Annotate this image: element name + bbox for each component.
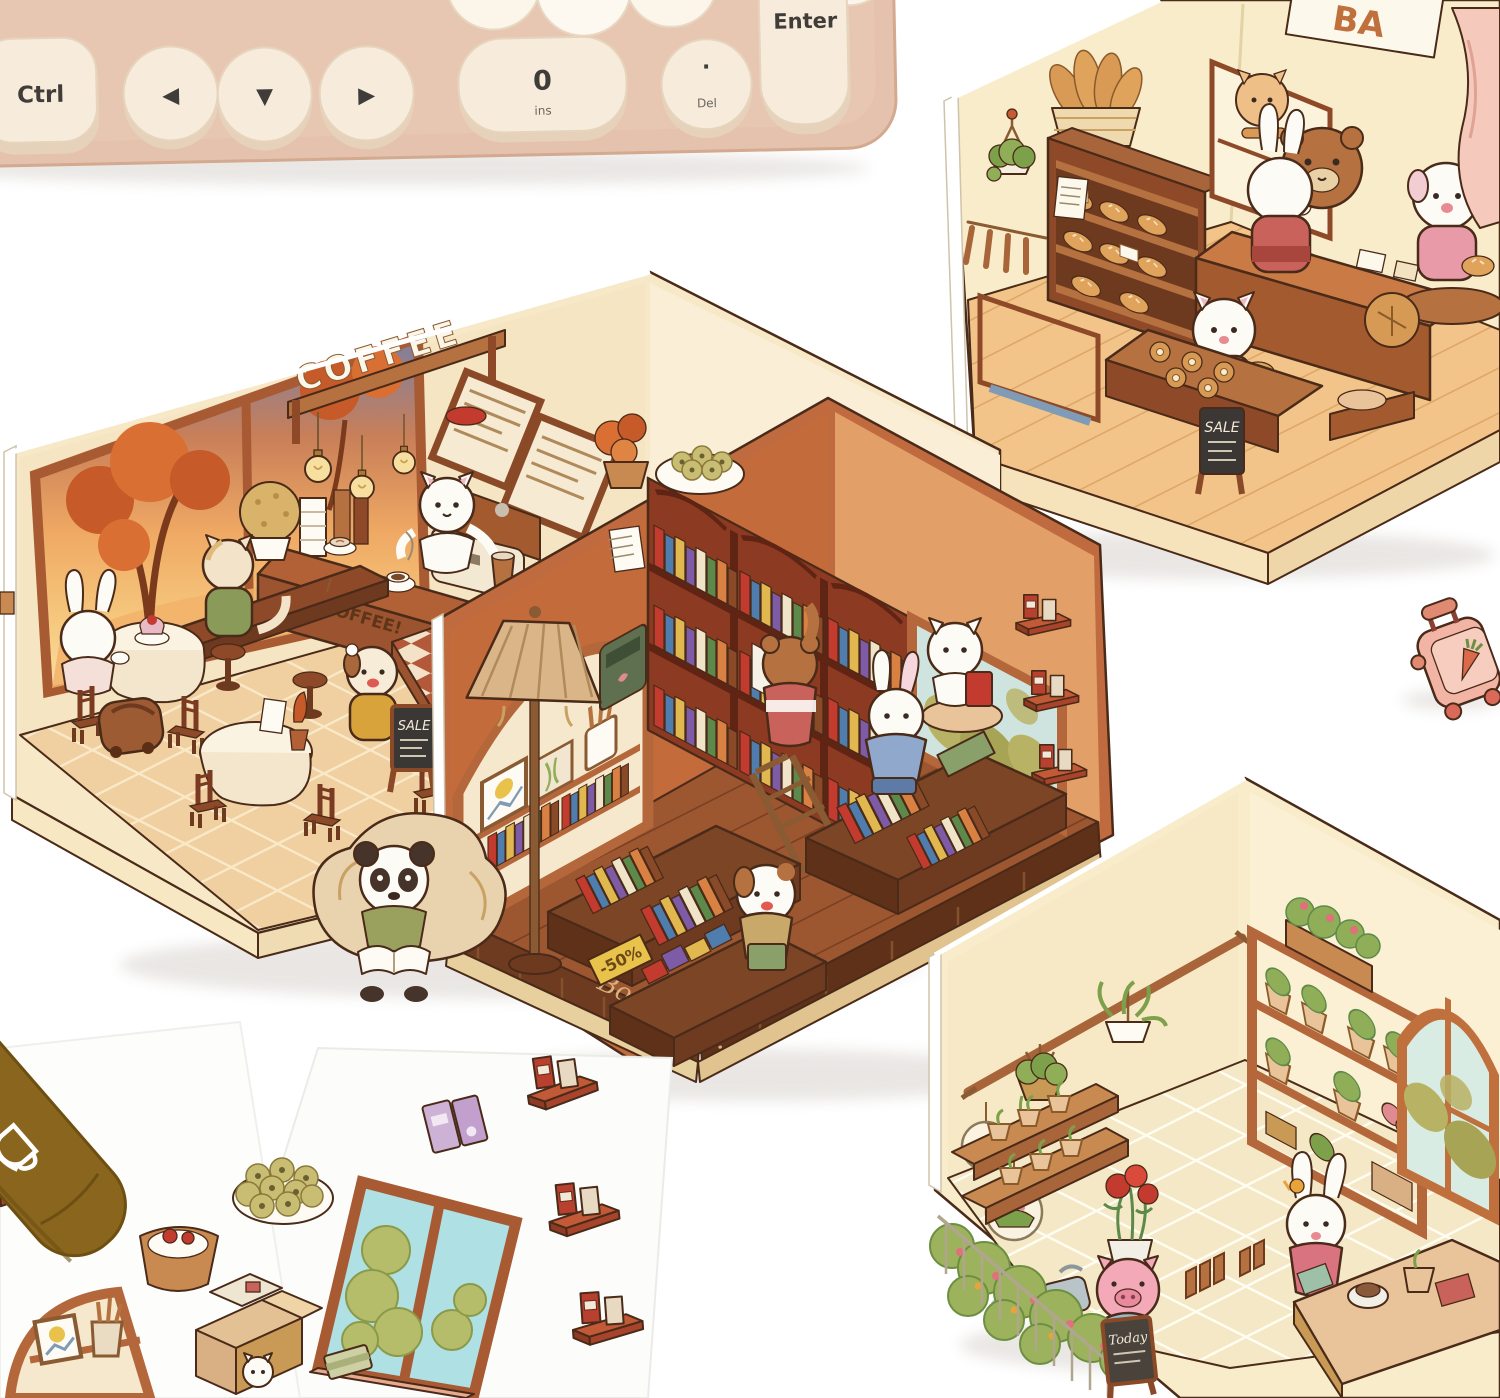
svg-text:▶: ▶ xyxy=(358,83,376,108)
plant-chalkboard: Today xyxy=(1102,1316,1158,1398)
svg-text:SALE: SALE xyxy=(398,719,431,734)
peeking-cat xyxy=(243,1353,273,1387)
key-zero: 0 ins xyxy=(458,36,628,143)
scene-canvas: Ctrl ◀ ▼ ▶ 0 ins · Del Enter xyxy=(0,0,1500,1398)
keyboard: Ctrl ◀ ▼ ▶ 0 ins · Del Enter xyxy=(0,0,897,168)
svg-text:Enter: Enter xyxy=(773,8,838,33)
acrylic-edge xyxy=(929,951,941,1192)
svg-text:BA: BA xyxy=(1330,0,1389,46)
svg-text:SALE: SALE xyxy=(1204,420,1239,436)
svg-text:▼: ▼ xyxy=(256,84,274,109)
svg-text:0: 0 xyxy=(533,65,552,96)
cake-sticker xyxy=(140,1227,218,1291)
svg-text:Del: Del xyxy=(697,96,717,110)
sun-picture-frame xyxy=(35,1315,82,1363)
product-photo-scene: Ctrl ◀ ▼ ▶ 0 ins · Del Enter xyxy=(0,0,1500,1398)
red-book xyxy=(966,672,992,706)
key-ctrl: Ctrl xyxy=(0,37,100,155)
svg-text:◀: ◀ xyxy=(162,83,180,108)
svg-text:·: · xyxy=(702,55,711,80)
svg-text:ins: ins xyxy=(534,103,551,117)
paper-note xyxy=(609,526,645,572)
key-arrow-left: ◀ xyxy=(123,45,219,150)
key-del: · Del xyxy=(661,38,753,139)
acrylic-edge xyxy=(4,446,16,800)
key-arrow-down: ▼ xyxy=(217,46,313,151)
key-arrow-right: ▶ xyxy=(319,45,415,150)
svg-text:Ctrl: Ctrl xyxy=(17,82,65,109)
key-enter: Enter xyxy=(758,0,852,135)
